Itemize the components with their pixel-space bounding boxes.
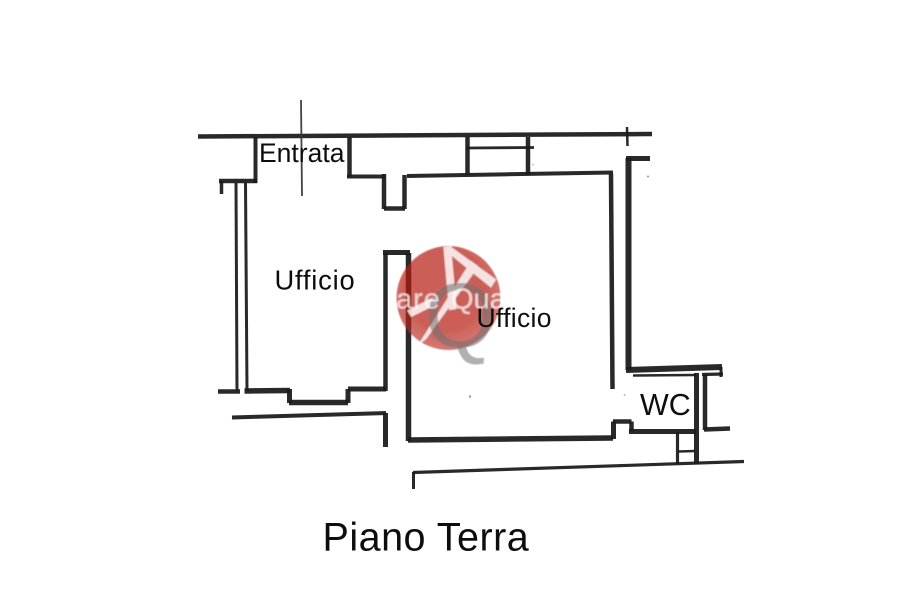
svg-text:Ufficio: Ufficio — [275, 265, 356, 296]
svg-text:Piano Terra: Piano Terra — [323, 516, 530, 560]
svg-text:Entrata: Entrata — [259, 138, 345, 168]
svg-text:are: are — [396, 284, 441, 316]
svg-text:WC: WC — [640, 388, 691, 422]
svg-text:Ufficio: Ufficio — [477, 303, 552, 333]
